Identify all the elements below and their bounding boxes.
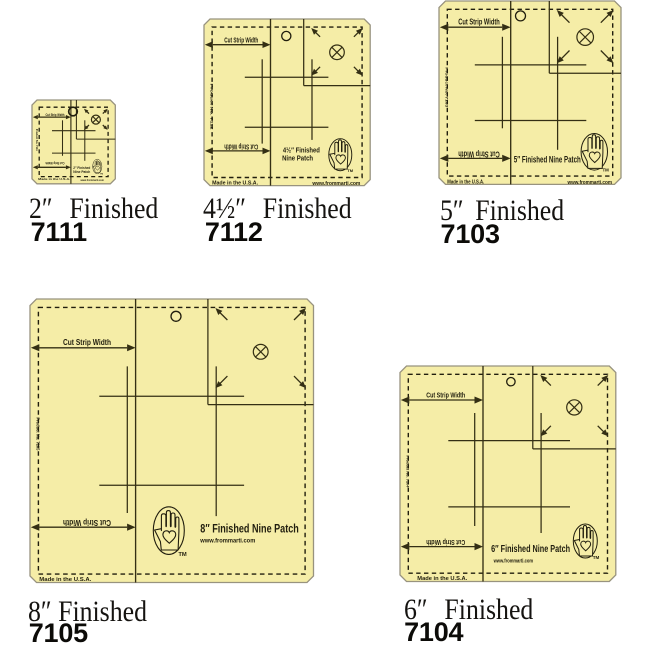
svg-text:www.frommarti.com: www.frommarti.com (80, 178, 105, 182)
svg-text:Cut Strip Width: Cut Strip Width (63, 518, 111, 528)
svg-text:2″ Finished: 2″ Finished (73, 166, 91, 170)
svg-text:Cut Strip Width: Cut Strip Width (426, 391, 465, 400)
svg-text:5″ Finished Nine Patch: 5″ Finished Nine Patch (514, 154, 581, 164)
svg-text:Cut Strip Width: Cut Strip Width (426, 538, 465, 547)
svg-text:TM: TM (100, 173, 103, 175)
svg-text:www.frommarti.com: www.frommarti.com (199, 538, 255, 545)
svg-text:Made in the U.S.A.: Made in the U.S.A. (39, 577, 91, 583)
svg-text:Cut Strip Width: Cut Strip Width (45, 161, 64, 165)
svg-text:Made in the U.S.A.: Made in the U.S.A. (212, 180, 259, 186)
svg-text:TM: TM (592, 555, 599, 560)
svg-text:Nine Patch: Nine Patch (73, 170, 91, 174)
svg-text:TM: TM (178, 552, 187, 558)
svg-text:www.frommarti.com: www.frommarti.com (492, 558, 533, 564)
svg-text:Nine Patch: Nine Patch (282, 153, 313, 162)
svg-text:8″ Finished Nine Patch: 8″ Finished Nine Patch (200, 521, 298, 535)
svg-text:Cut Strip Width: Cut Strip Width (63, 337, 111, 347)
svg-text:Made in the U.S.A.: Made in the U.S.A. (417, 576, 467, 582)
svg-text:Product No. 7111: Product No. 7111 (35, 129, 38, 152)
svg-text:Cut Strip Width: Cut Strip Width (458, 17, 499, 27)
svg-text:www.frommarti.com: www.frommarti.com (312, 181, 361, 187)
svg-text:Cut Strip Width: Cut Strip Width (224, 35, 258, 44)
svg-text:Product No. 7112: Product No. 7112 (209, 83, 213, 129)
svg-text:Cut Strip Width: Cut Strip Width (45, 113, 64, 117)
svg-text:6″ Finished Nine Patch: 6″ Finished Nine Patch (491, 544, 570, 555)
svg-text:TM: TM (603, 168, 610, 173)
svg-text:Made in the U.S.A.: Made in the U.S.A. (447, 180, 484, 186)
svg-text:www.frommarti.com: www.frommarti.com (567, 180, 613, 186)
svg-text:Product No. 7103: Product No. 7103 (445, 67, 449, 107)
svg-text:Product No. 7105: Product No. 7105 (35, 417, 40, 451)
svg-text:Cut Strip Width: Cut Strip Width (458, 150, 499, 160)
svg-text:Cut Strip Width: Cut Strip Width (224, 142, 258, 151)
svg-text:Made in the U.S.A.: Made in the U.S.A. (38, 177, 70, 181)
svg-text:Product No. 7104: Product No. 7104 (405, 455, 409, 488)
svg-text:TM: TM (348, 168, 354, 173)
